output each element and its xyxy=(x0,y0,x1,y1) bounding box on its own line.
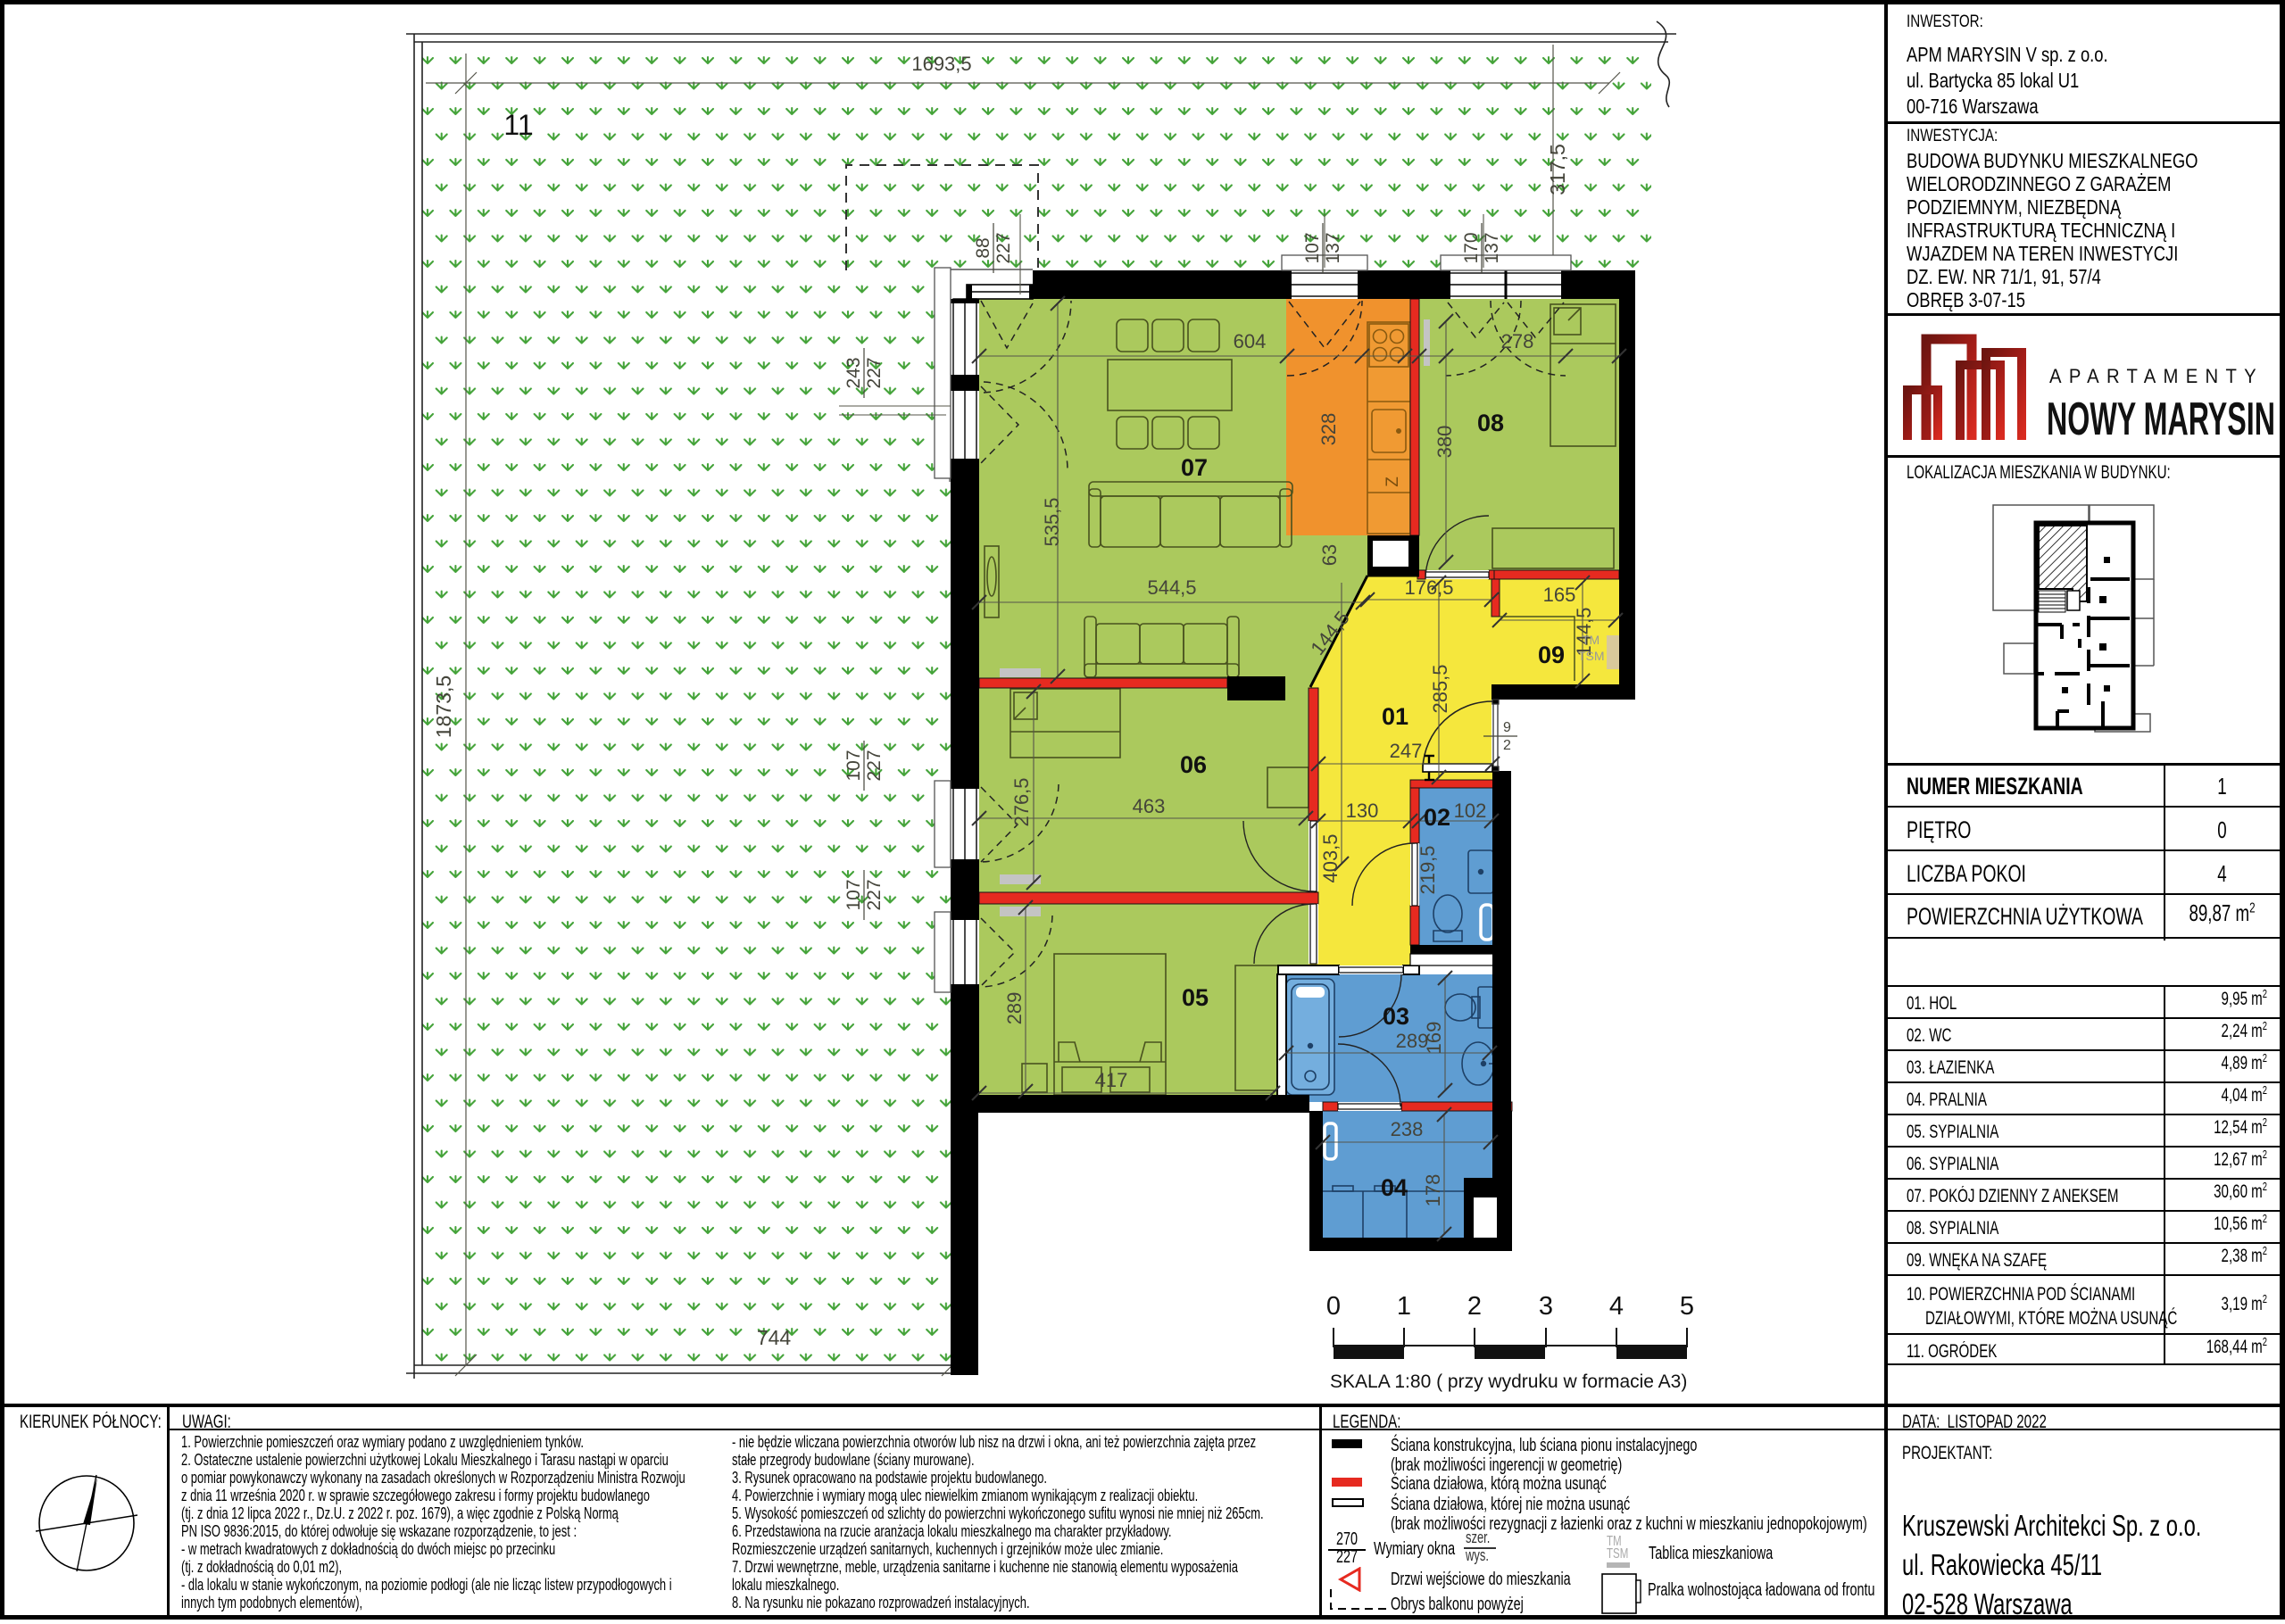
svg-text:NOWY MARYSIN: NOWY MARYSIN xyxy=(2047,394,2275,445)
svg-text:08: 08 xyxy=(1477,410,1504,436)
svg-text:0: 0 xyxy=(1326,1292,1341,1321)
svg-text:1693,5: 1693,5 xyxy=(911,53,971,75)
svg-text:4: 4 xyxy=(1609,1292,1624,1321)
svg-text:Z: Z xyxy=(1383,476,1402,487)
svg-text:2: 2 xyxy=(1503,738,1511,753)
svg-text:05: 05 xyxy=(1182,984,1209,1011)
svg-text:88: 88 xyxy=(973,237,993,258)
svg-text:276,5: 276,5 xyxy=(1010,777,1033,826)
svg-text:227: 227 xyxy=(993,232,1014,263)
svg-text:APARTAMENTY: APARTAMENTY xyxy=(2049,365,2264,387)
svg-text:02: 02 xyxy=(1424,804,1450,831)
svg-text:2: 2 xyxy=(1467,1292,1482,1321)
svg-text:243: 243 xyxy=(843,357,864,388)
svg-text:278: 278 xyxy=(1501,330,1534,352)
svg-text:417: 417 xyxy=(1095,1069,1128,1091)
svg-text:227: 227 xyxy=(864,750,885,781)
svg-text:380: 380 xyxy=(1433,426,1456,459)
svg-text:07: 07 xyxy=(1181,454,1208,481)
svg-text:227: 227 xyxy=(864,357,885,388)
svg-text:744: 744 xyxy=(757,1326,792,1349)
svg-text:328: 328 xyxy=(1317,413,1340,446)
svg-text:238: 238 xyxy=(1391,1118,1424,1140)
svg-text:219,5: 219,5 xyxy=(1417,845,1439,894)
svg-text:06: 06 xyxy=(1180,751,1207,778)
svg-text:01: 01 xyxy=(1382,703,1408,730)
svg-text:5: 5 xyxy=(1680,1292,1694,1321)
svg-text:285,5: 285,5 xyxy=(1429,664,1451,713)
svg-text:247: 247 xyxy=(1390,740,1423,762)
svg-text:107: 107 xyxy=(843,750,864,781)
svg-text:107: 107 xyxy=(1302,232,1323,263)
svg-text:SKALA 1:80 ( przy wydruku w fo: SKALA 1:80 ( przy wydruku w formacie A3) xyxy=(1330,1371,1687,1392)
svg-text:1: 1 xyxy=(1397,1292,1411,1321)
svg-text:107: 107 xyxy=(843,879,864,910)
svg-text:11: 11 xyxy=(503,109,533,141)
svg-text:TM: TM xyxy=(1582,633,1599,647)
svg-text:463: 463 xyxy=(1133,795,1166,817)
svg-text:09: 09 xyxy=(1538,642,1565,668)
svg-text:102: 102 xyxy=(1454,800,1487,822)
svg-text:03: 03 xyxy=(1383,1003,1409,1030)
svg-text:176,5: 176,5 xyxy=(1404,576,1453,599)
svg-text:3: 3 xyxy=(1539,1292,1553,1321)
svg-text:317,5: 317,5 xyxy=(1546,144,1569,195)
svg-text:544,5: 544,5 xyxy=(1147,576,1196,599)
svg-text:130: 130 xyxy=(1346,800,1379,822)
svg-text:169: 169 xyxy=(1423,1022,1445,1055)
svg-text:1873,5: 1873,5 xyxy=(432,675,455,738)
svg-text:170: 170 xyxy=(1461,232,1482,263)
svg-text:04: 04 xyxy=(1381,1174,1408,1201)
svg-text:137: 137 xyxy=(1482,232,1502,263)
svg-text:227: 227 xyxy=(864,879,885,910)
svg-text:165: 165 xyxy=(1543,584,1576,606)
svg-text:9: 9 xyxy=(1503,720,1511,735)
svg-text:63: 63 xyxy=(1318,544,1341,566)
svg-text:137: 137 xyxy=(1323,232,1343,263)
svg-text:178: 178 xyxy=(1422,1174,1444,1207)
svg-text:604: 604 xyxy=(1234,330,1267,352)
svg-text:TSM: TSM xyxy=(1578,649,1605,663)
svg-text:403,5: 403,5 xyxy=(1319,833,1342,882)
svg-text:535,5: 535,5 xyxy=(1041,497,1063,546)
svg-text:289: 289 xyxy=(1003,992,1026,1025)
